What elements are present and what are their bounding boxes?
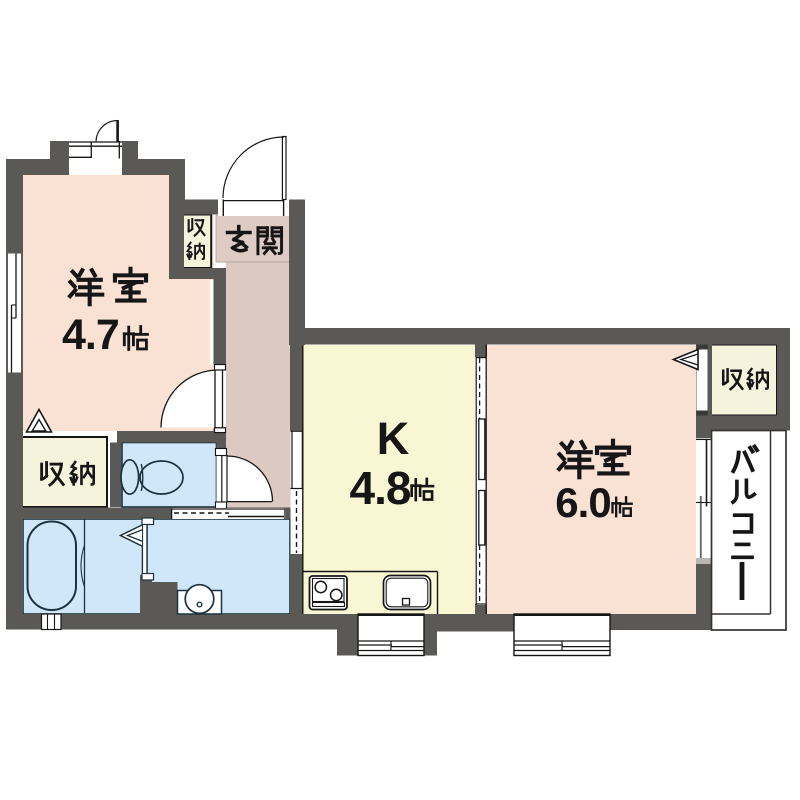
svg-text:6.0: 6.0: [555, 479, 610, 526]
svg-text:4.8: 4.8: [350, 462, 411, 514]
svg-text:K: K: [377, 413, 410, 464]
svg-text:4.7: 4.7: [62, 311, 119, 359]
